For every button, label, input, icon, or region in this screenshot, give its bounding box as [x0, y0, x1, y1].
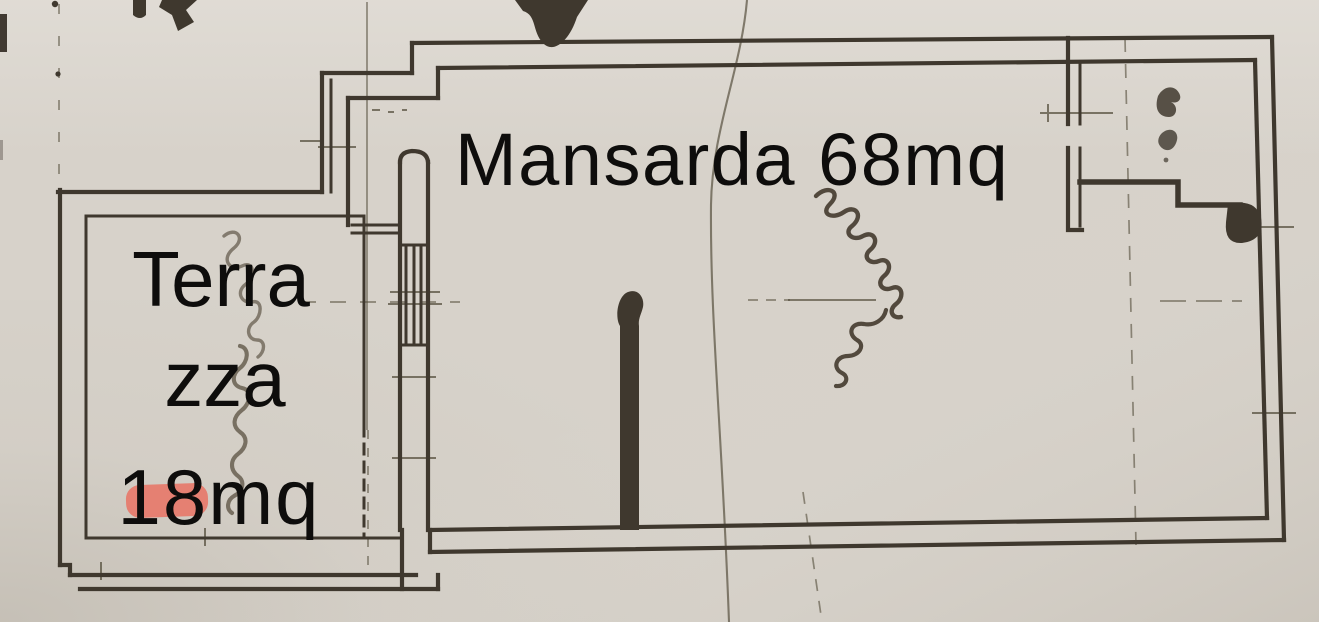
- left-edge-streak-small: [0, 140, 3, 160]
- terrazza-label-line3: 18mq: [117, 453, 320, 541]
- mansarda-label: Mansarda 68mq: [455, 118, 1009, 201]
- top-edge-bar-mark: [133, 0, 146, 18]
- top-edge-dot-b: [55, 71, 60, 76]
- terrazza-label-line2: zza: [164, 335, 286, 423]
- floor-plan-svg: Mansarda 68mq Terra zza 18mq: [0, 0, 1319, 622]
- floor-plan-scan: Mansarda 68mq Terra zza 18mq: [0, 0, 1319, 622]
- top-edge-dot-a: [52, 1, 58, 7]
- terrazza-label-line1: Terra: [132, 235, 310, 323]
- wc-corner-blob: [1226, 203, 1262, 243]
- left-edge-streak: [0, 14, 7, 52]
- wc-script-dot: [1164, 158, 1169, 163]
